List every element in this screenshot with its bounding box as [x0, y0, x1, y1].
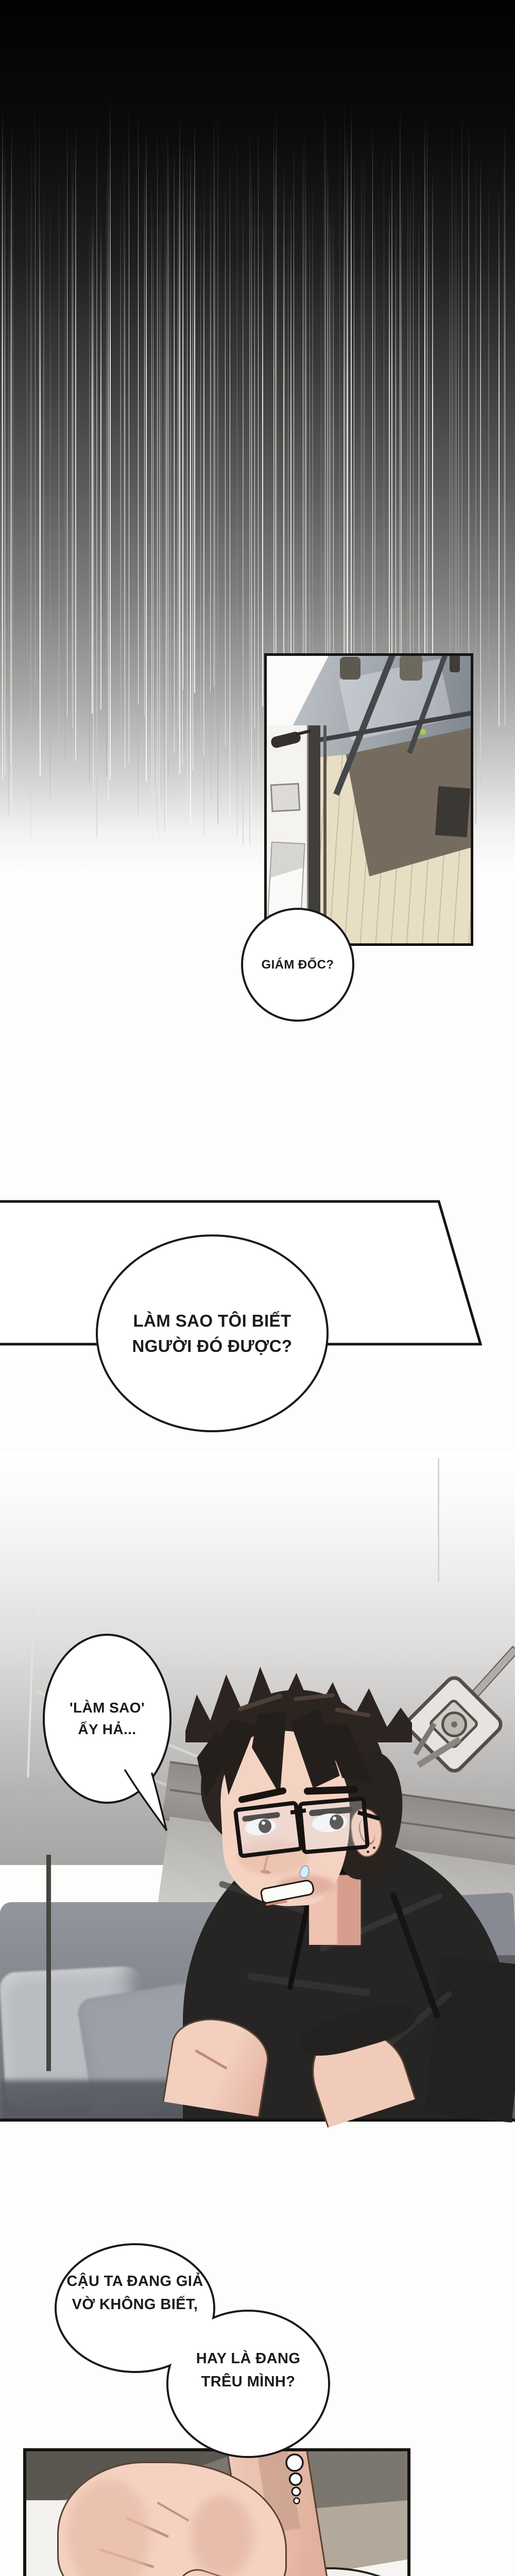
speed-line [11, 132, 12, 803]
speed-line [10, 166, 11, 765]
speech-bubble-lam-sao-toi-biet: LÀM SAO TÔI BIẾT NGƯỜI ĐÓ ĐƯỢC? [96, 1234, 329, 1432]
speed-line [65, 167, 65, 761]
bubble-tail [116, 1767, 173, 1834]
speed-line [419, 211, 419, 690]
speed-line [167, 124, 168, 758]
speed-line [389, 192, 390, 689]
speed-line [106, 163, 107, 776]
speed-line [217, 99, 218, 825]
speed-line [164, 133, 165, 830]
speed-line [258, 122, 259, 770]
panel-room-overview [264, 653, 473, 946]
speed-line [325, 112, 326, 740]
speed-line [230, 151, 230, 819]
speed-line [146, 127, 147, 782]
speed-line [332, 183, 332, 731]
speed-line [179, 115, 180, 774]
speed-line [187, 137, 187, 815]
speed-line [120, 214, 121, 718]
thought-text-cau-ta: CẬU TA ĐANG GIẢ VỜ KHÔNG BIẾT, [58, 2270, 212, 2316]
wall-corner-line [438, 1458, 439, 1582]
head [160, 1669, 407, 1958]
speed-line [200, 192, 201, 739]
bubble-text-line: ẤY HẢ... [78, 1719, 136, 1740]
speech-bubble-giam-doc: GIÁM ĐỐC? [241, 908, 354, 1022]
speed-line [100, 216, 101, 709]
speed-line [424, 121, 425, 740]
speed-line [499, 191, 500, 726]
panel-bottom-border [0, 2119, 515, 2122]
speed-line [194, 121, 195, 692]
speed-line [125, 214, 125, 768]
speed-line [458, 203, 459, 695]
glasses-right-lens [298, 1796, 370, 1854]
speed-line [75, 124, 76, 761]
speed-line [361, 145, 362, 729]
glass-partition-line [323, 725, 327, 943]
bubble-text-line: VỜ KHÔNG BIẾT, [72, 2293, 198, 2316]
ceiling-cylinder [400, 655, 422, 681]
speed-line [170, 206, 171, 806]
bubble-text-line: 'LÀM SAO' [70, 1697, 145, 1719]
speed-line [166, 208, 166, 817]
speed-line [504, 100, 504, 714]
speed-line [413, 133, 414, 709]
speed-line [168, 166, 169, 778]
speed-line [151, 177, 152, 788]
thought-text-hay-la: HAY LÀ ĐANG TRÊU MÌNH? [171, 2347, 325, 2394]
speed-line [210, 169, 211, 693]
speed-line [13, 179, 13, 716]
speed-line [40, 216, 41, 777]
speed-line [178, 177, 179, 730]
bubble-text: GIÁM ĐỐC? [262, 956, 334, 974]
speed-line [92, 215, 93, 714]
speed-line [174, 204, 174, 719]
speed-line [157, 162, 158, 795]
speed-line [121, 181, 121, 788]
speed-line [183, 177, 184, 736]
sink [270, 783, 301, 812]
man-figure [144, 1631, 515, 2119]
speed-line [225, 174, 226, 746]
speed-line [215, 152, 215, 771]
speed-line [251, 152, 252, 829]
speed-line [407, 174, 408, 689]
speed-line [72, 163, 73, 728]
green-dot-plant [420, 729, 426, 735]
speed-line [310, 195, 310, 702]
ear-piercing [373, 1846, 375, 1849]
speed-line [480, 154, 481, 789]
speed-line [190, 144, 191, 827]
speed-line [262, 207, 263, 706]
speed-line [50, 170, 50, 796]
speed-line [67, 118, 67, 717]
speed-line [2, 108, 3, 780]
speed-line [275, 136, 276, 694]
ear-piercing [367, 1851, 369, 1853]
speed-line [429, 198, 430, 709]
speed-line [454, 168, 455, 718]
speed-line [505, 120, 505, 726]
speed-line [108, 149, 109, 803]
speed-line [211, 160, 212, 802]
bubble-text-line: CẬU TA ĐANG GIẢ [66, 2270, 203, 2293]
speed-line [243, 190, 244, 845]
speed-line [475, 149, 476, 824]
speed-line [391, 146, 392, 734]
speed-line [161, 162, 161, 805]
neck-shadow [337, 1875, 360, 1945]
speed-line [461, 103, 462, 704]
speed-line [159, 203, 160, 841]
speed-line [110, 99, 111, 779]
bubble-text-line: NGƯỜI ĐÓ ĐƯỢC? [132, 1333, 293, 1359]
speed-line [96, 123, 97, 837]
speed-line [214, 111, 214, 687]
speed-line [30, 195, 31, 839]
speed-line [324, 100, 325, 708]
speed-line [153, 207, 153, 846]
speed-line [276, 102, 277, 693]
speed-line [59, 161, 59, 777]
speed-line [31, 117, 32, 747]
bubble-text-line: HAY LÀ ĐANG [196, 2347, 301, 2370]
lamp-pole [46, 1855, 51, 2071]
speed-line [182, 178, 183, 766]
leaning-board [267, 841, 305, 917]
speed-line [72, 117, 72, 734]
speed-line [237, 107, 237, 836]
comic-page: GIÁM ĐỐC? LÀM SAO TÔI BIẾT NGƯỜI ĐÓ ĐƯỢC… [0, 0, 515, 2576]
speed-line [73, 138, 74, 786]
speed-line [330, 213, 330, 694]
speed-line [89, 216, 90, 782]
speed-line [8, 191, 9, 816]
speed-line [129, 105, 129, 763]
speed-line [138, 108, 139, 705]
speed-line [5, 135, 5, 775]
speed-line [144, 154, 145, 717]
speed-line [35, 101, 36, 686]
glasses-left-lens [233, 1801, 303, 1859]
speed-line [93, 202, 94, 797]
speed-line [354, 161, 354, 713]
speed-line [108, 112, 108, 752]
speed-line [450, 184, 450, 722]
bubble-text-line: TRÊU MÌNH? [201, 2370, 296, 2394]
speed-line [254, 188, 255, 728]
tshirt-side [424, 1956, 515, 2123]
speed-line [174, 140, 175, 753]
speed-line [488, 179, 489, 713]
speed-line [193, 173, 193, 769]
speed-line [27, 162, 27, 707]
speed-line [249, 123, 250, 845]
speed-line [303, 138, 303, 708]
speed-line [2, 142, 2, 713]
speed-line [43, 186, 44, 692]
rug-dark-table [435, 786, 470, 837]
speed-line [328, 152, 328, 694]
speed-line [204, 140, 204, 836]
speed-line [396, 194, 396, 723]
ceiling-cylinder [450, 654, 460, 672]
ceiling-cylinder [340, 657, 360, 680]
bubble-text-line: LÀM SAO TÔI BIẾT [133, 1308, 291, 1334]
speed-line [124, 143, 125, 730]
